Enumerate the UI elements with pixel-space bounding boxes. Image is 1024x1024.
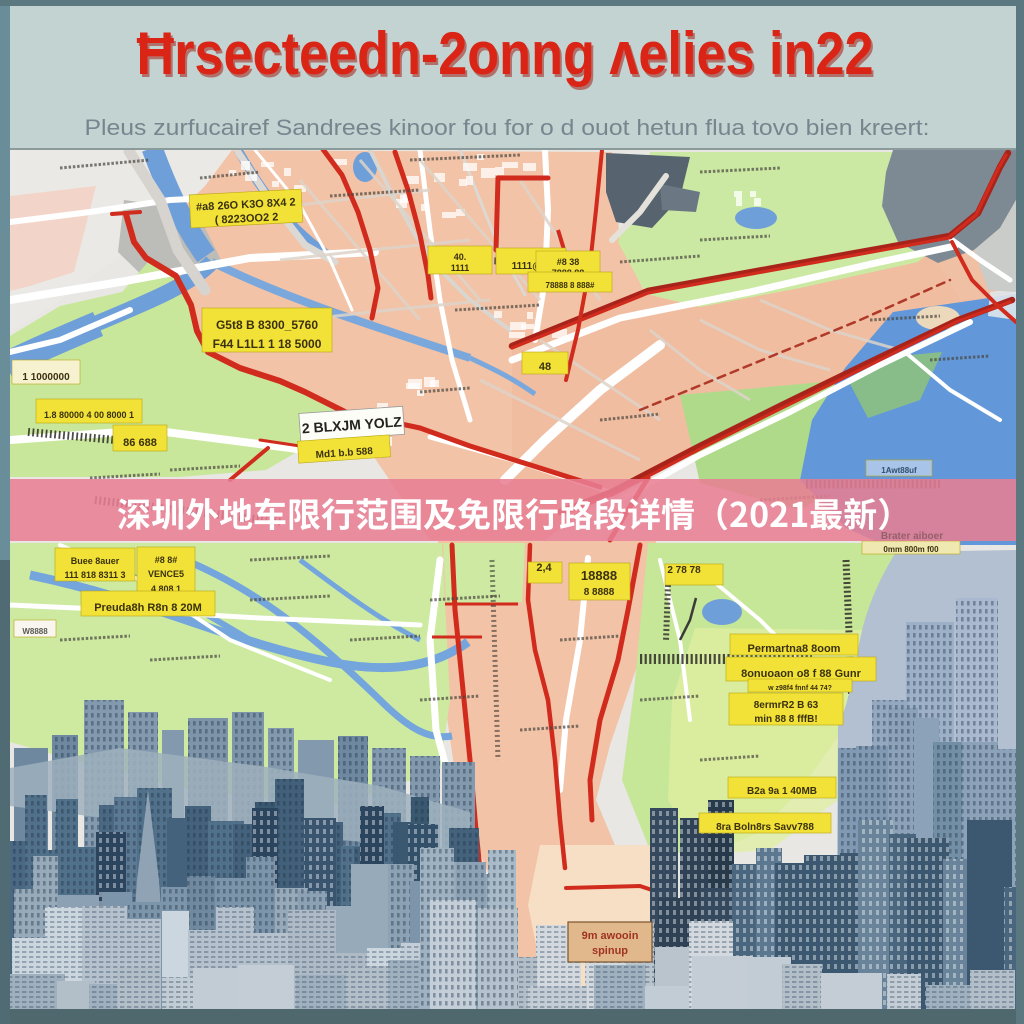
svg-text:Preuda8h R8n 8 20M: Preuda8h R8n 8 20M	[94, 602, 202, 614]
svg-text:VENCE5: VENCE5	[148, 569, 184, 579]
svg-text:48: 48	[539, 361, 551, 373]
svg-text:1111: 1111	[451, 263, 470, 273]
svg-text:8onuoaon o8 f 88 Gunr: 8onuoaon o8 f 88 Gunr	[741, 668, 862, 680]
svg-text:Permartna8 8oom: Permartna8 8oom	[748, 643, 841, 655]
svg-text:Pleus zurfucairef Sandrees kin: Pleus zurfucairef Sandrees kinoor fou fo…	[85, 115, 930, 140]
svg-text:W8888: W8888	[22, 627, 48, 636]
svg-text:Buee 8auer: Buee 8auer	[71, 556, 120, 566]
svg-text:2 78 78: 2 78 78	[667, 565, 701, 576]
svg-text:1.8 80000 4 00 8000 1: 1.8 80000 4 00 8000 1	[44, 410, 134, 420]
svg-text:Brater aiboer: Brater aiboer	[881, 531, 943, 542]
svg-text:9m awooin: 9m awooin	[582, 930, 639, 942]
svg-text:86 688: 86 688	[123, 437, 157, 449]
svg-text:F44 L1L1 1 18 5000: F44 L1L1 1 18 5000	[213, 337, 322, 351]
svg-text:111 818 8311 3: 111 818 8311 3	[64, 570, 125, 580]
svg-text:40.: 40.	[454, 252, 467, 262]
svg-text:Ħrsecteedn-2onng ʌelies in22: Ħrsecteedn-2onng ʌelies in22	[137, 20, 874, 87]
svg-text:min 88 8 fffB!: min 88 8 fffB!	[754, 714, 817, 725]
svg-text:8ermrR2 B 63: 8ermrR2 B 63	[754, 700, 819, 711]
svg-text:spinup: spinup	[592, 945, 628, 957]
svg-text:B2a 9a 1 40MB: B2a 9a 1 40MB	[747, 786, 817, 797]
svg-text:2,4: 2,4	[536, 562, 552, 574]
svg-text:8ra Boln8rs Savv788: 8ra Boln8rs Savv788	[716, 822, 814, 833]
svg-text:78888 8 888#: 78888 8 888#	[546, 281, 595, 290]
svg-text:18888: 18888	[581, 568, 617, 583]
svg-text:w z98f4 fnnf 44 74?: w z98f4 fnnf 44 74?	[767, 685, 832, 692]
svg-text:8 8888: 8 8888	[584, 587, 615, 598]
svg-text:G5t8 B 8300_5760: G5t8 B 8300_5760	[216, 318, 318, 332]
svg-text:1Awt88uf: 1Awt88uf	[881, 466, 917, 475]
svg-text:1 1000000: 1 1000000	[22, 372, 70, 383]
svg-text:#8 8#: #8 8#	[155, 555, 178, 565]
svg-text:0mm 800m f00: 0mm 800m f00	[883, 545, 939, 554]
svg-text:#8 38: #8 38	[557, 257, 580, 267]
